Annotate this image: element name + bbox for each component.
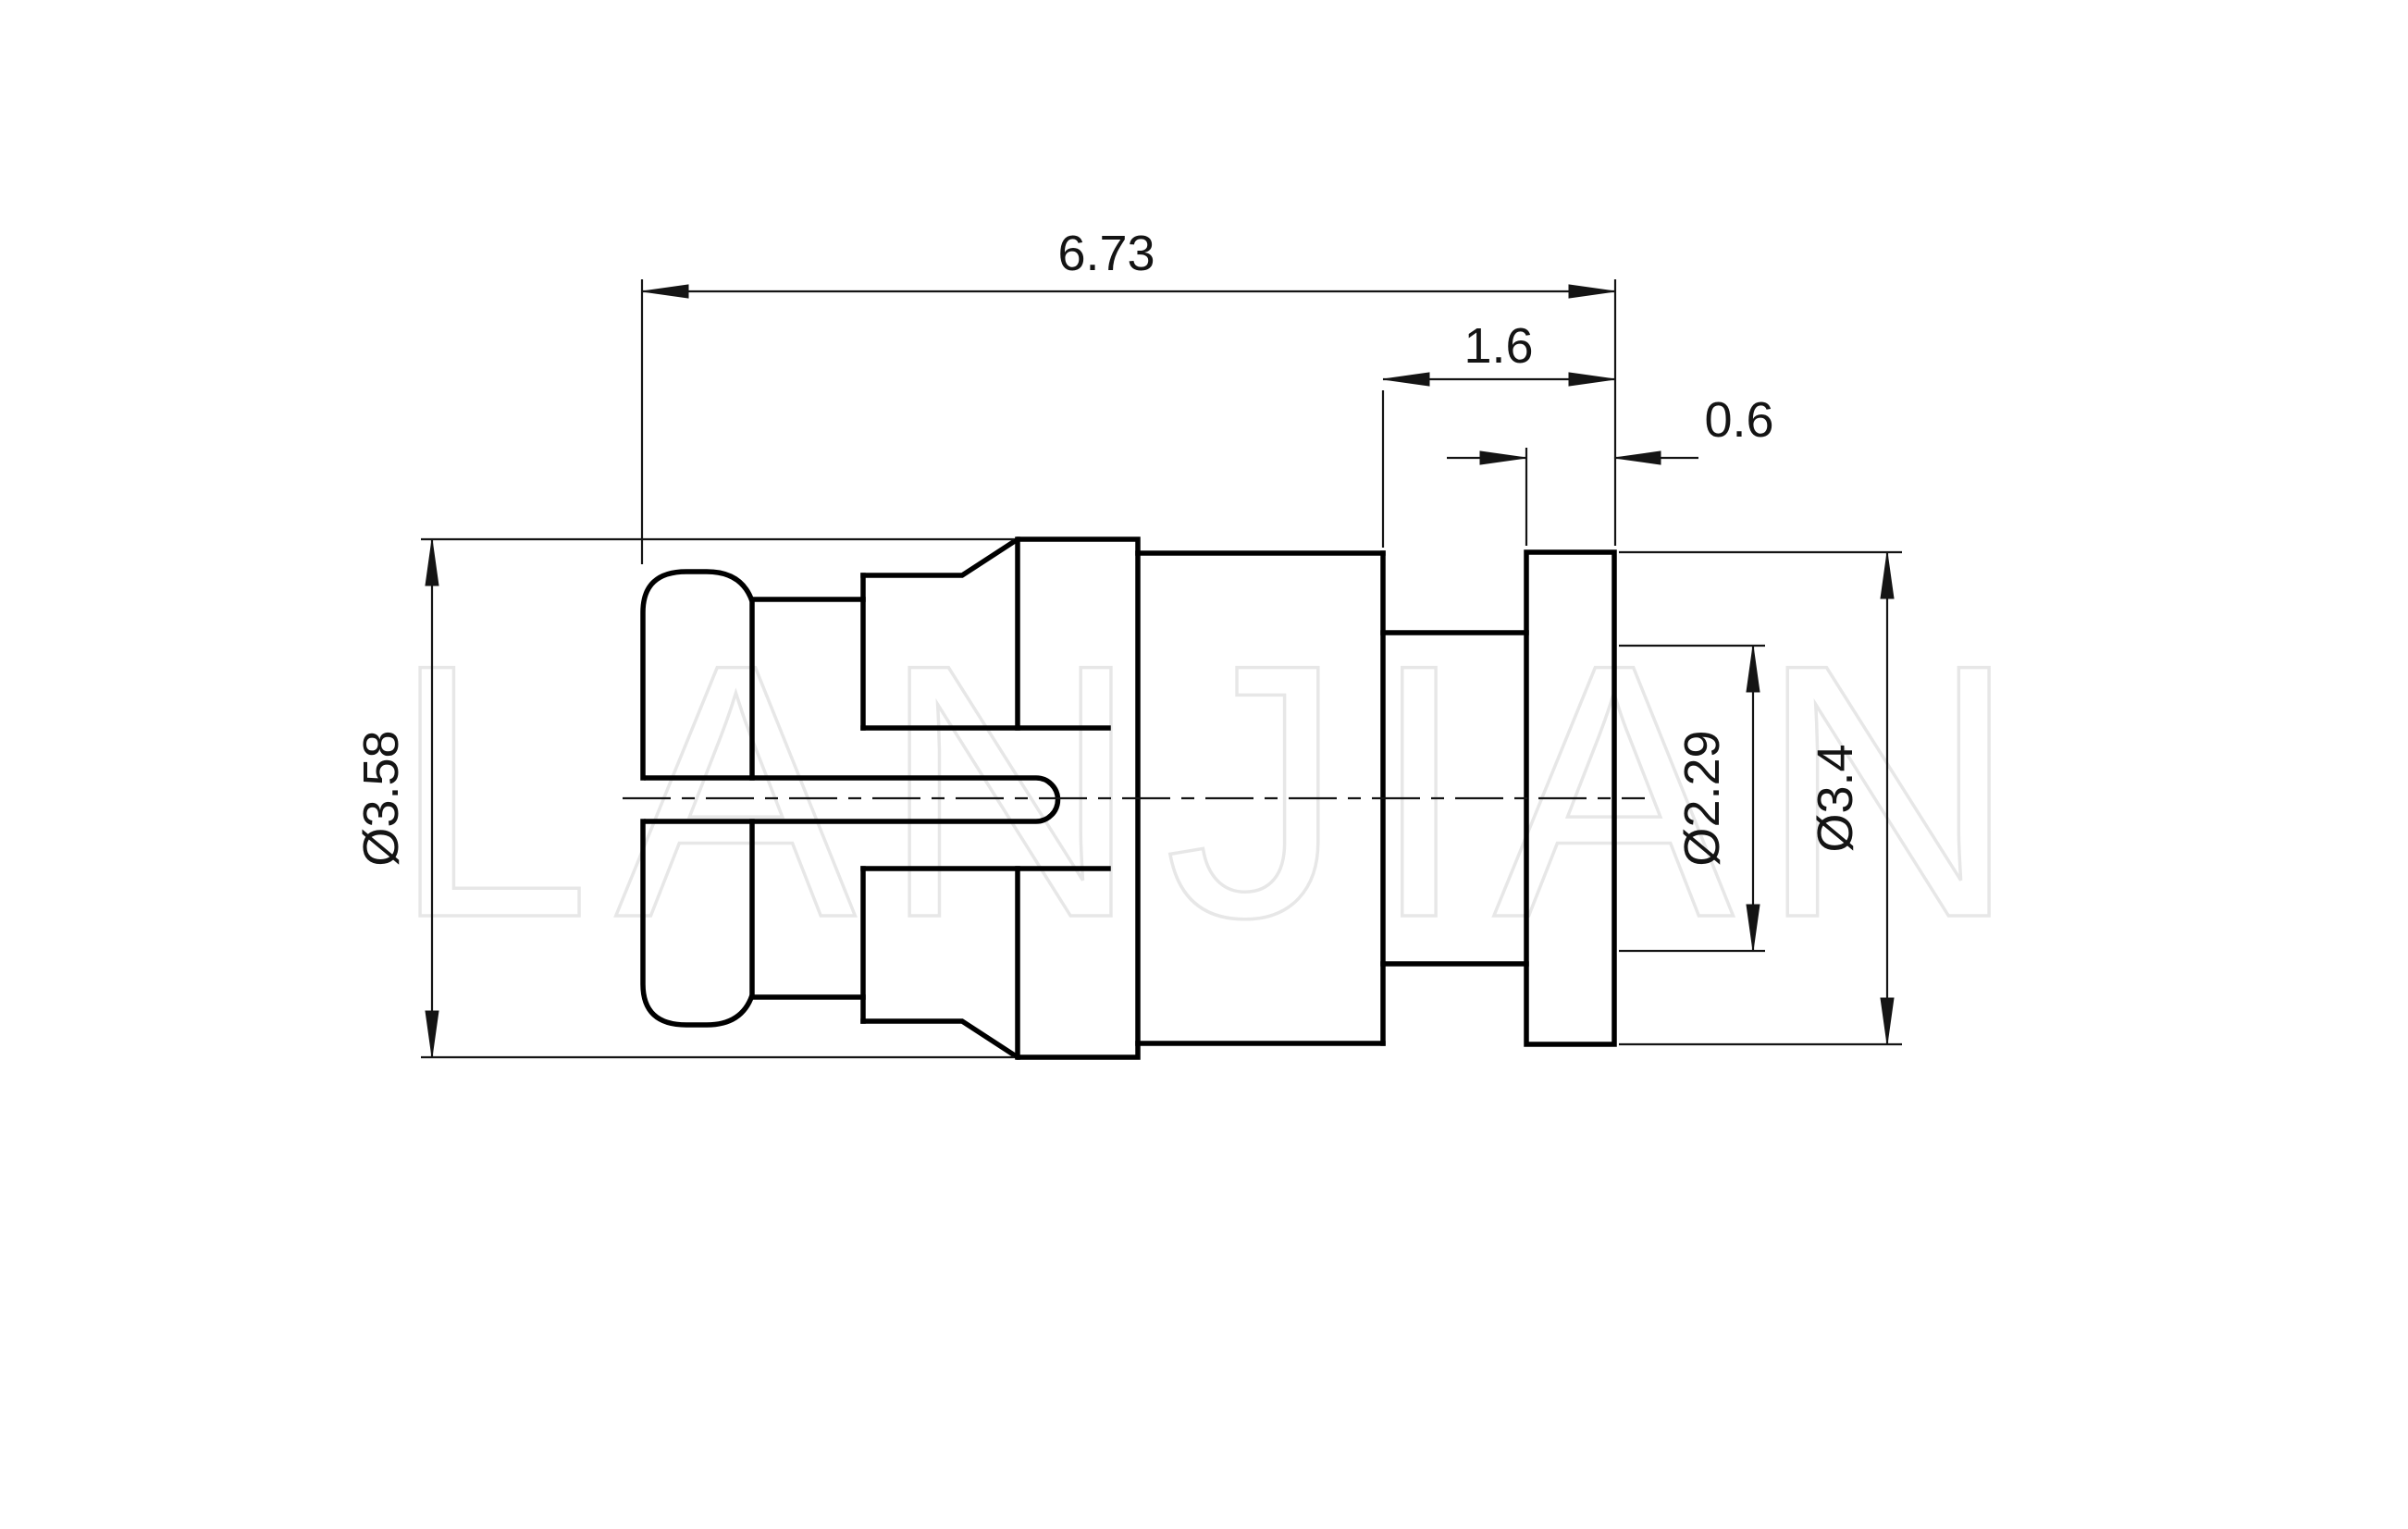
dimension-value: 1.6 — [1463, 318, 1533, 374]
arrowhead-left — [642, 285, 688, 298]
dimension-value: Ø3.58 — [353, 730, 409, 866]
arrowhead-up — [1881, 552, 1894, 598]
dimension-value: Ø2.29 — [1674, 730, 1730, 866]
arrowhead-down — [426, 1011, 438, 1057]
dimension-value: 0.6 — [1704, 392, 1773, 448]
arrowhead-right — [1569, 373, 1615, 386]
dimension-value: 6.73 — [1057, 226, 1155, 281]
arrowhead-left — [1383, 373, 1429, 386]
dimension-value: Ø3.4 — [1808, 744, 1863, 852]
dimension-flange-thickness: 0.6 — [1447, 392, 1774, 546]
dimension-rear-length: 1.6 — [1383, 318, 1615, 548]
arrowhead-down — [1881, 998, 1894, 1044]
arrowhead-right — [1480, 451, 1526, 464]
dimension-overall-length: 6.73 — [642, 226, 1615, 564]
drawing-page: LANJIAN — [0, 0, 2408, 1529]
arrowhead-right — [1569, 285, 1615, 298]
technical-drawing-canvas: LANJIAN — [0, 0, 2408, 1529]
watermark-text: LANJIAN — [390, 589, 2043, 993]
arrowhead-left — [1614, 451, 1661, 464]
arrowhead-up — [426, 539, 438, 586]
